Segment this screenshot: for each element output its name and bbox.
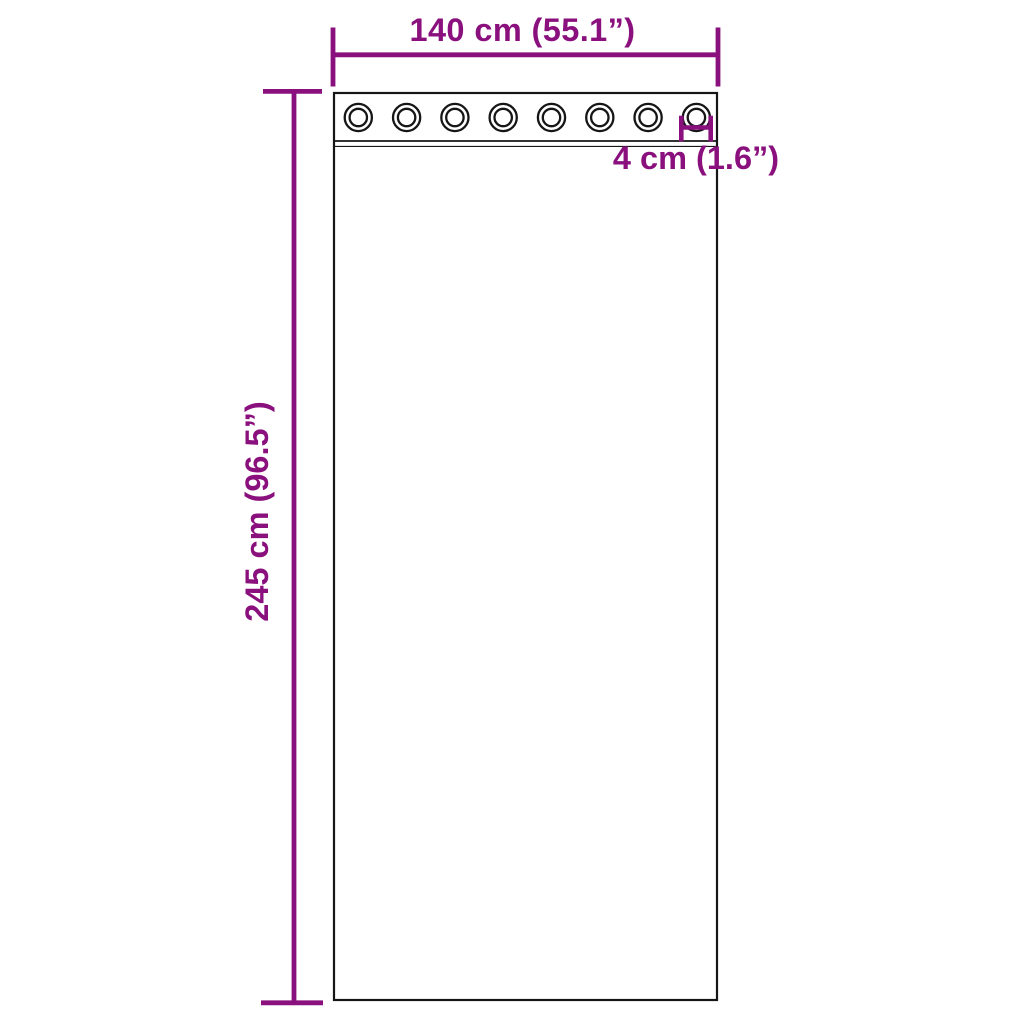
svg-text:4 cm (1.6”): 4 cm (1.6”) xyxy=(613,140,779,176)
svg-text:140 cm (55.1”): 140 cm (55.1”) xyxy=(409,12,635,48)
svg-text:245 cm (96.5”): 245 cm (96.5”) xyxy=(239,401,275,621)
